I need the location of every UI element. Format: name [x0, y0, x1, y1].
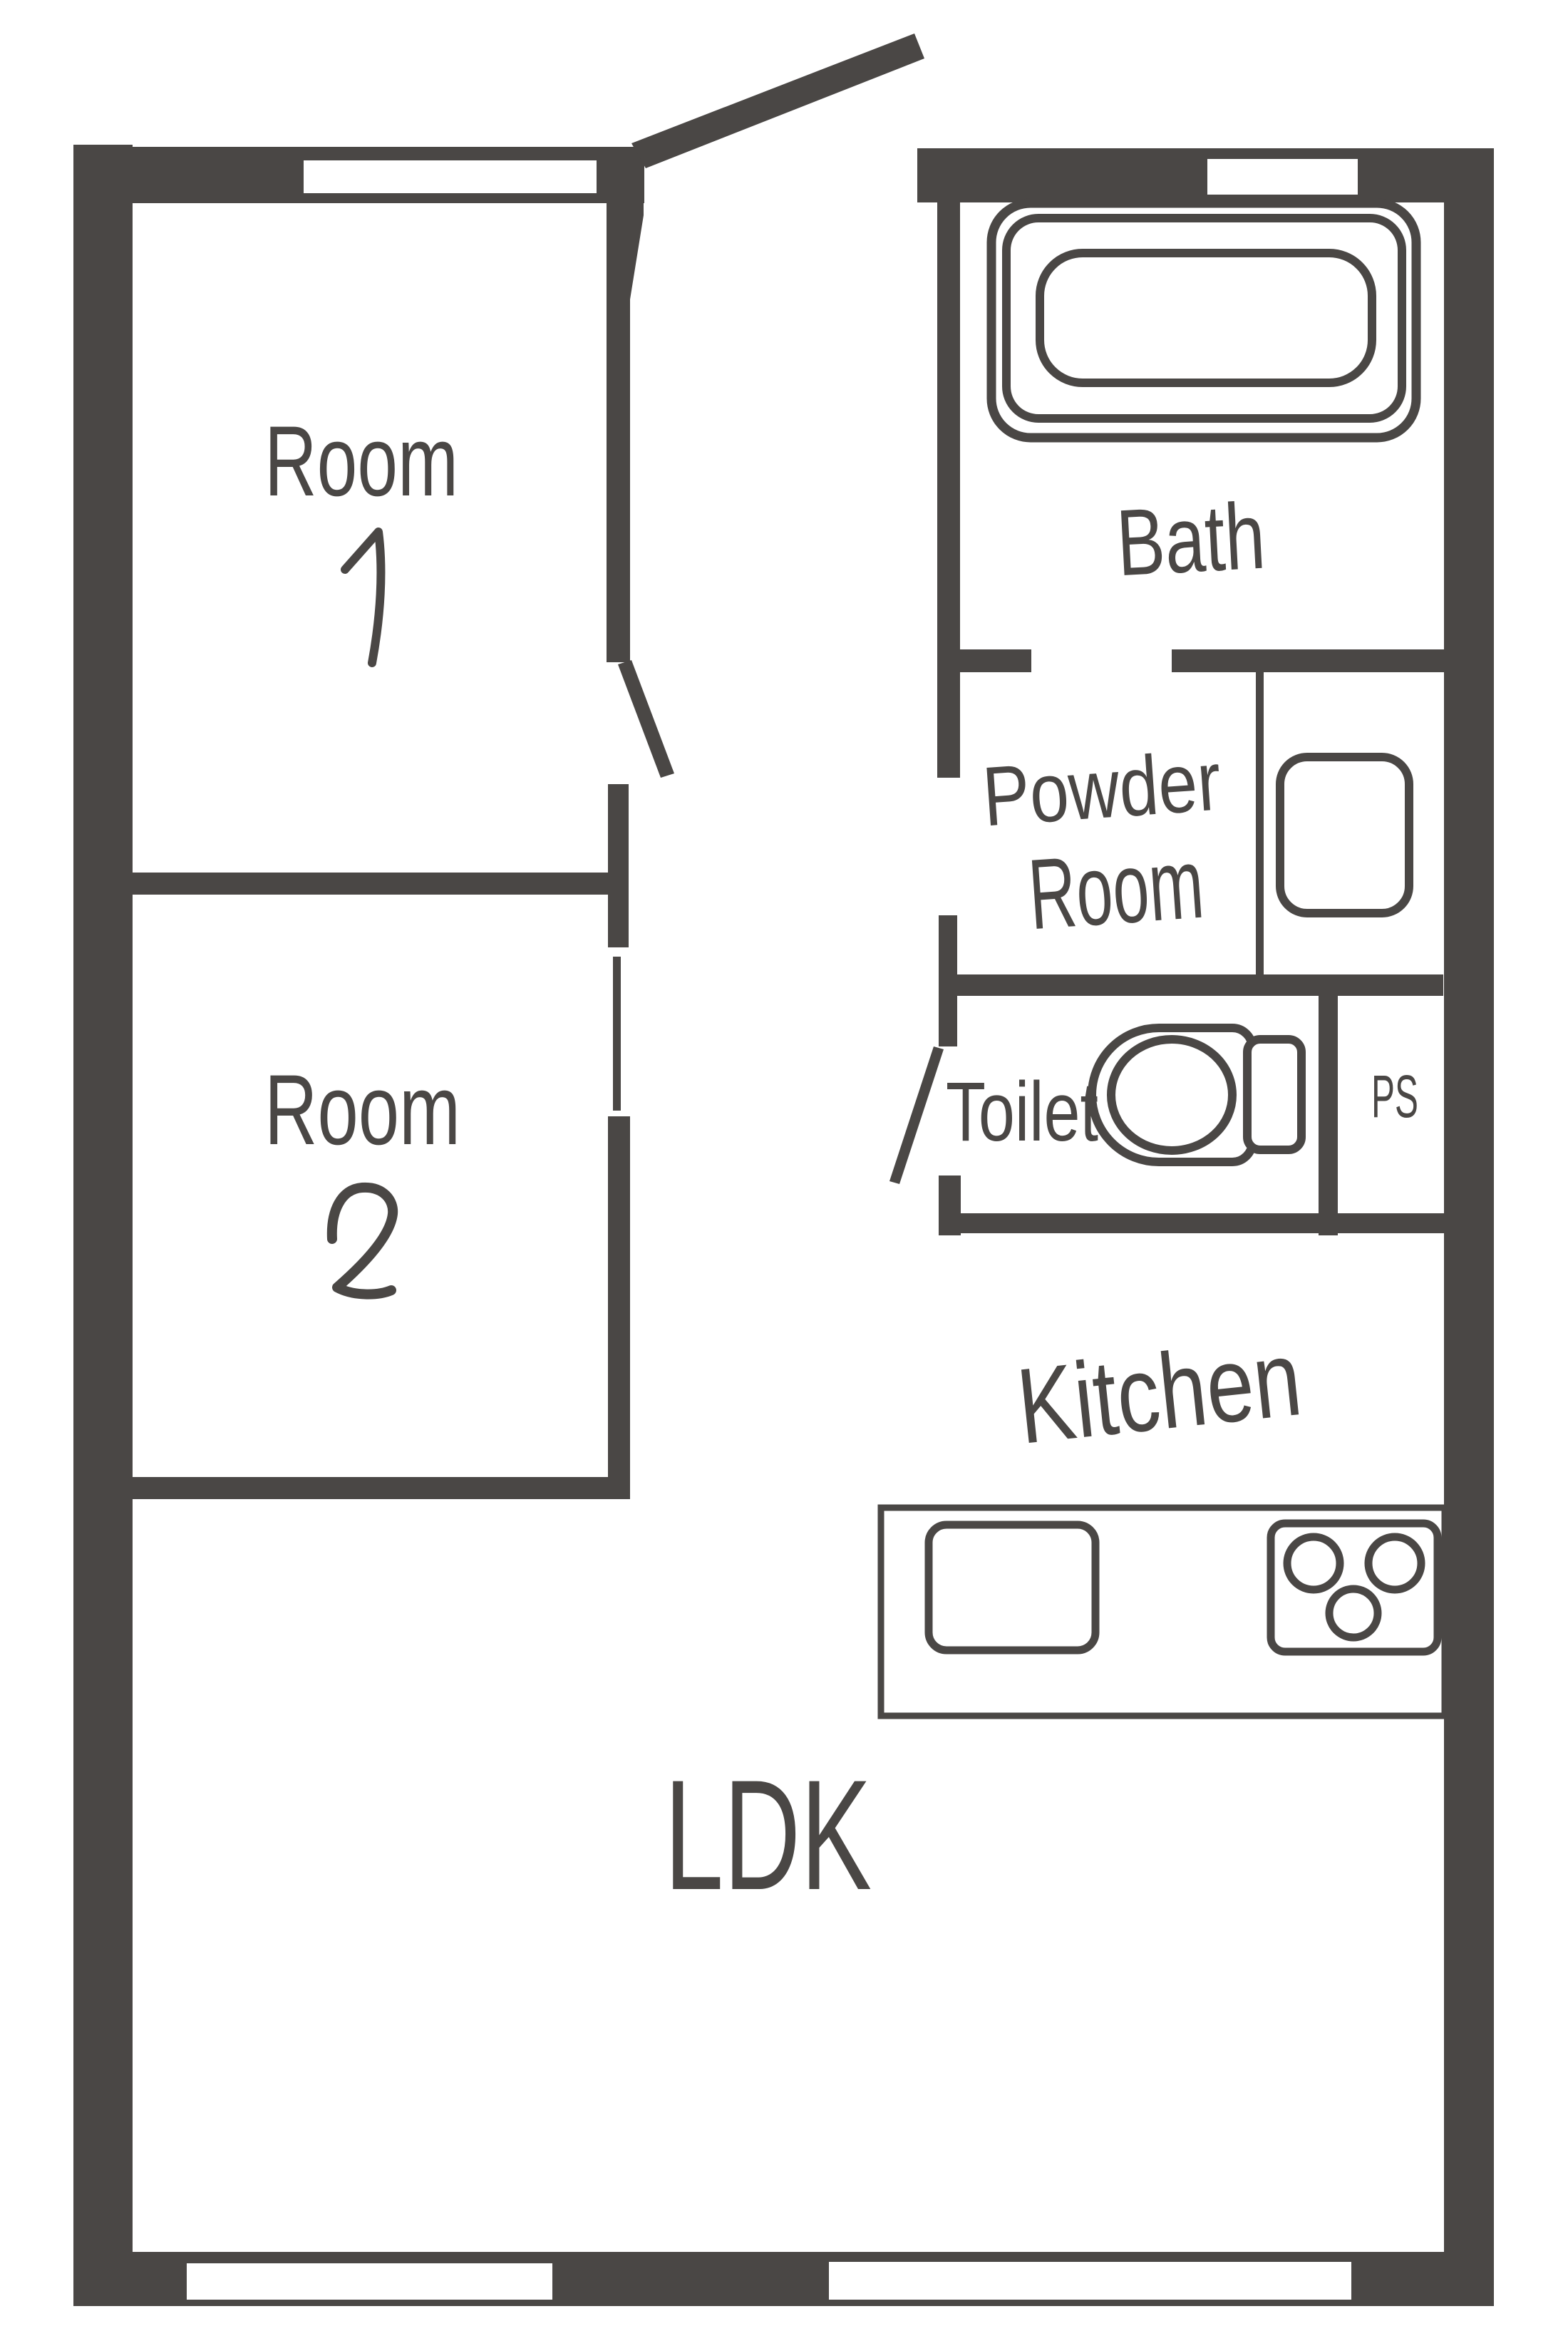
svg-text:PS: PS — [1371, 1063, 1418, 1130]
svg-text:Room: Room — [264, 1054, 460, 1166]
svg-text:Toilet: Toilet — [946, 1065, 1098, 1159]
svg-text:Bath: Bath — [1114, 483, 1267, 596]
svg-text:LDK: LDK — [664, 1747, 872, 1923]
svg-text:Room: Room — [264, 405, 458, 517]
svg-text:Room: Room — [1025, 827, 1207, 951]
